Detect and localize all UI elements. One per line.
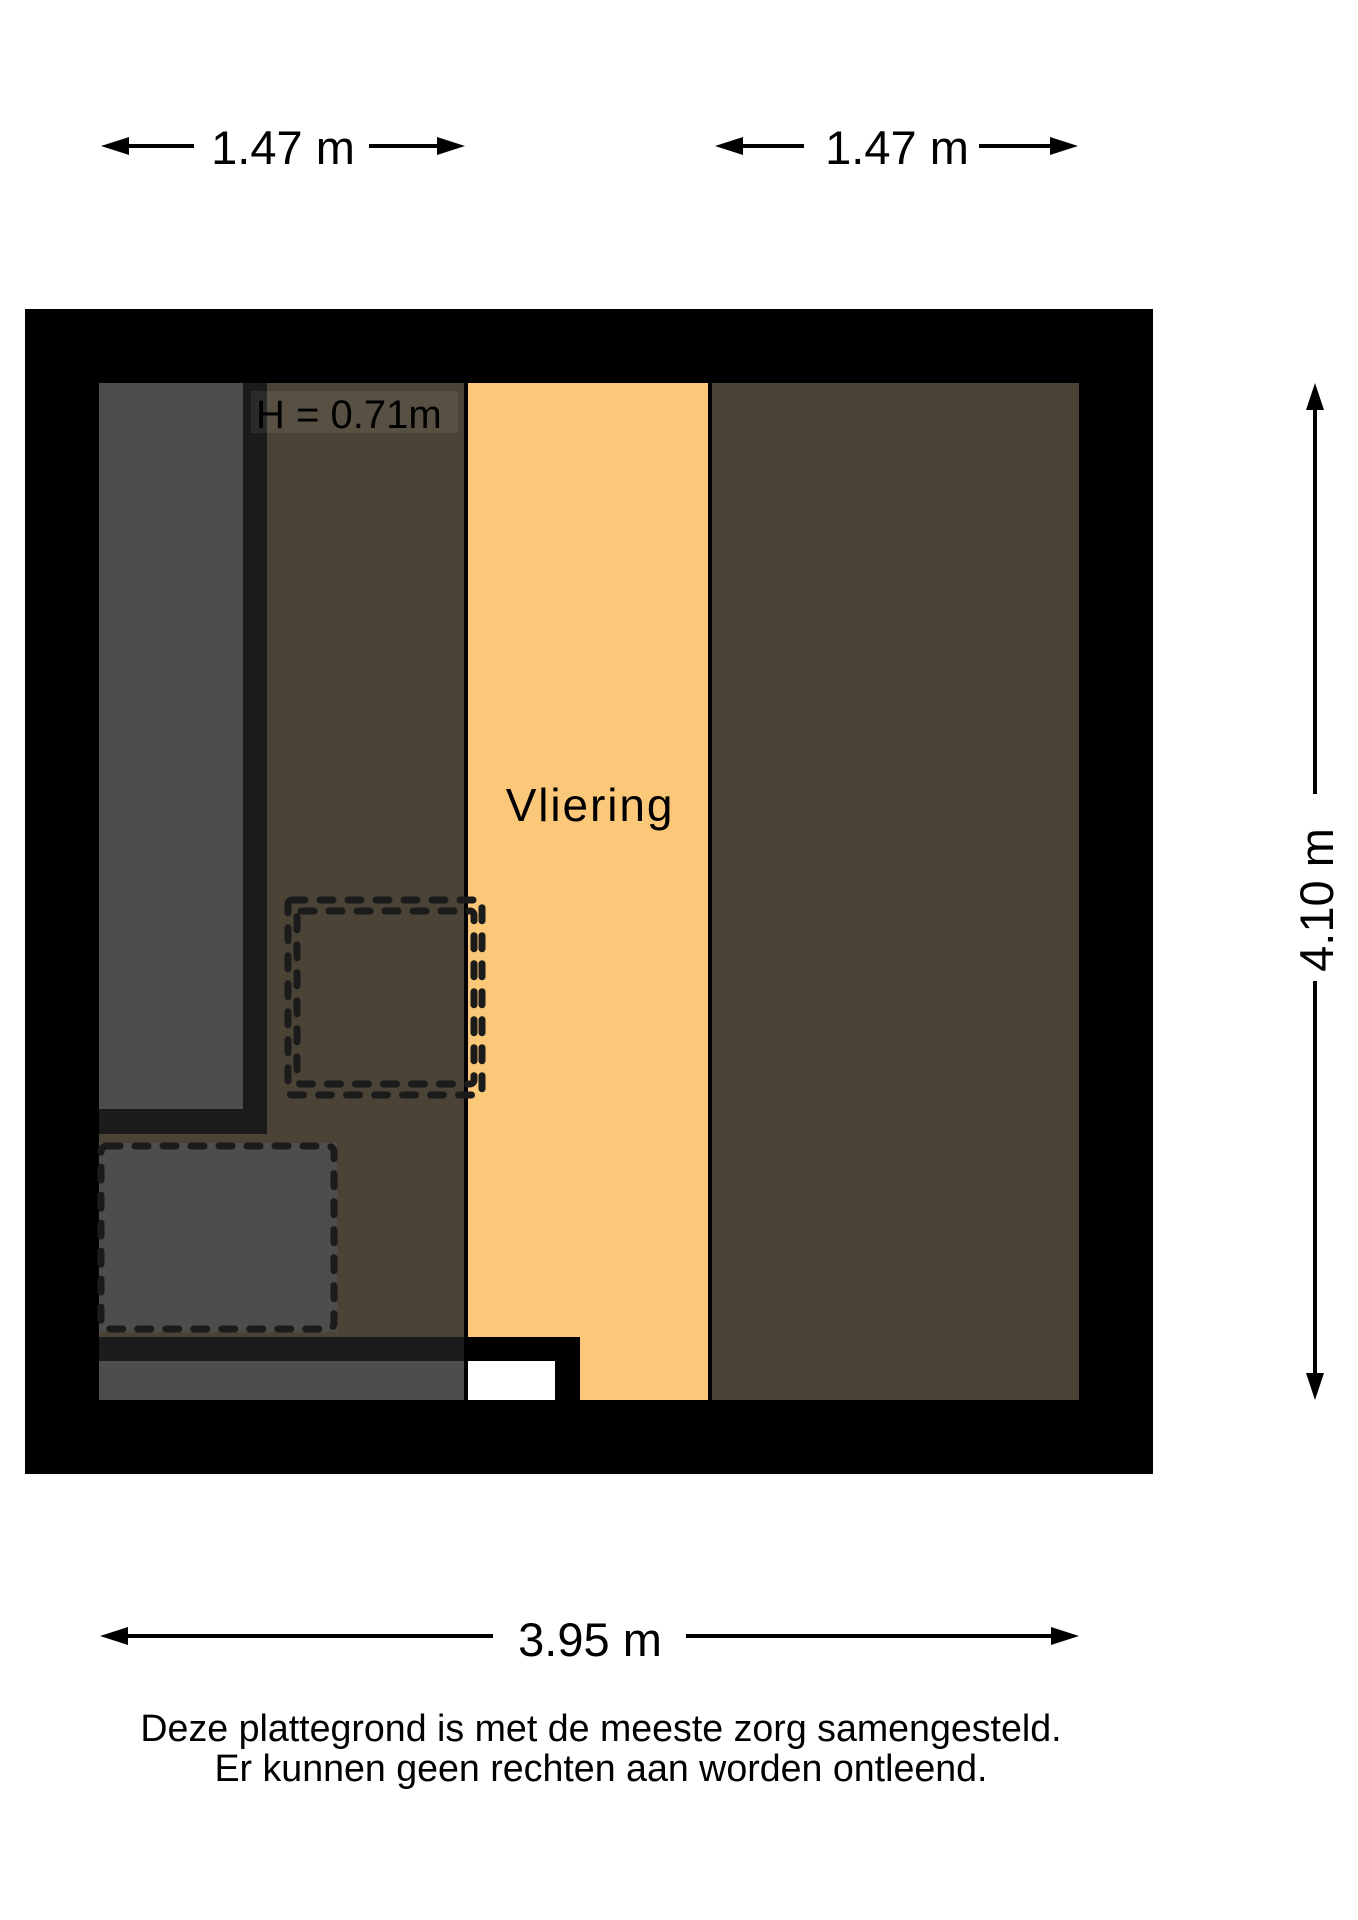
- svg-text:1.47 m: 1.47 m: [211, 121, 355, 174]
- svg-text:Vliering: Vliering: [506, 779, 675, 831]
- svg-text:1.47 m: 1.47 m: [825, 121, 969, 174]
- svg-text:4.10 m: 4.10 m: [1290, 828, 1343, 972]
- svg-text:H = 0.71m: H = 0.71m: [256, 393, 442, 437]
- svg-text:Er kunnen geen rechten aan wor: Er kunnen geen rechten aan worden ontlee…: [214, 1747, 987, 1789]
- svg-text:3.95 m: 3.95 m: [518, 1613, 662, 1666]
- svg-text:Deze plattegrond is met de mee: Deze plattegrond is met de meeste zorg s…: [140, 1707, 1061, 1749]
